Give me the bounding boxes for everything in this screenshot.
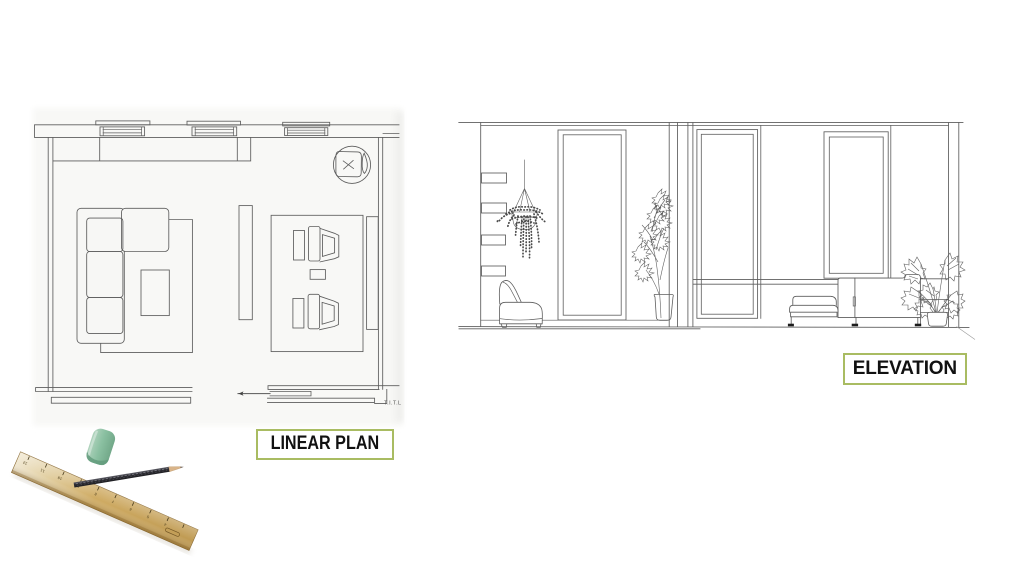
svg-text:T.I.T.L: T.I.T.L	[384, 401, 401, 407]
